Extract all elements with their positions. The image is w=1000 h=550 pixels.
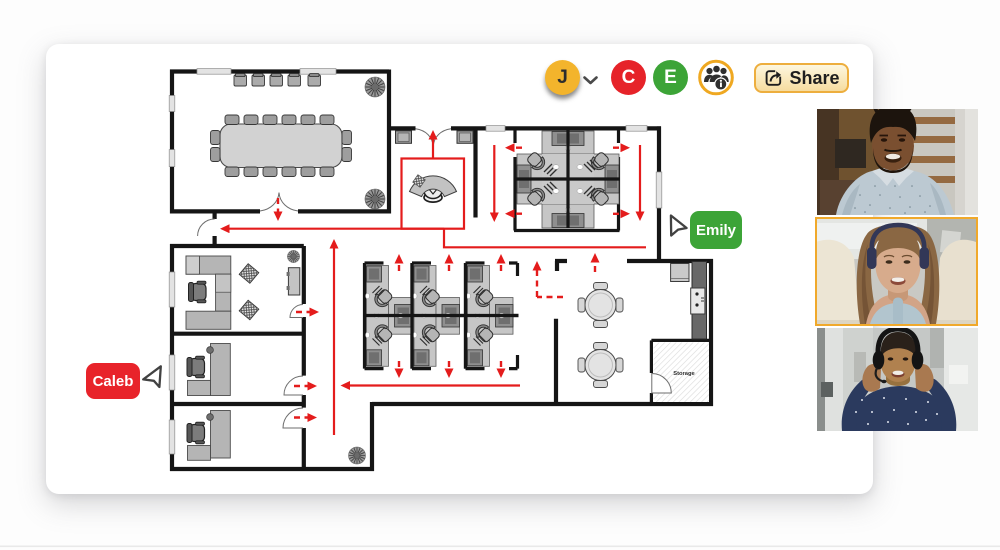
svg-text:Storage: Storage — [673, 371, 695, 377]
